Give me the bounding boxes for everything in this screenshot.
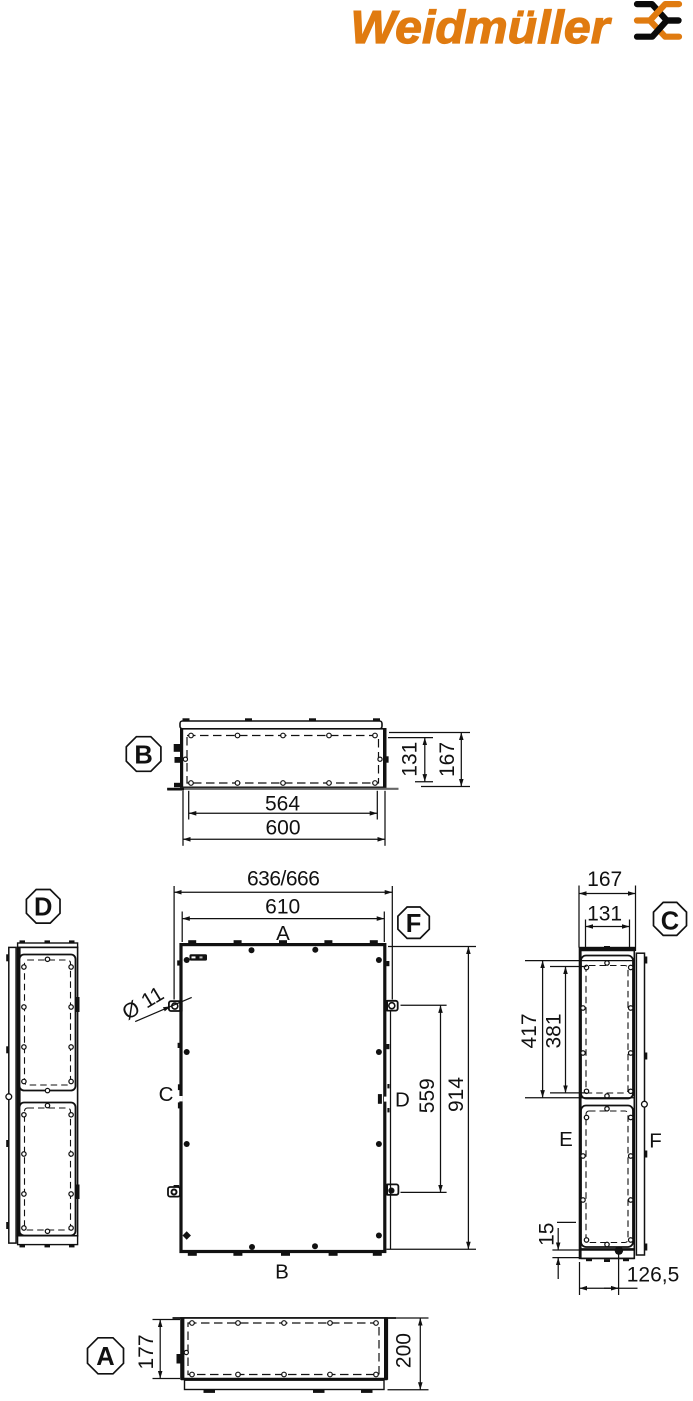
svg-text:C: C xyxy=(661,907,679,935)
svg-text:F: F xyxy=(406,910,422,938)
svg-text:D: D xyxy=(34,894,52,922)
svg-text:200: 200 xyxy=(392,1333,415,1368)
svg-text:610: 610 xyxy=(265,896,300,919)
svg-text:381: 381 xyxy=(542,1013,565,1048)
svg-text:636/666: 636/666 xyxy=(247,868,319,891)
svg-text:600: 600 xyxy=(265,817,300,840)
svg-text:177: 177 xyxy=(135,1334,158,1369)
svg-text:131: 131 xyxy=(587,902,622,925)
svg-text:914: 914 xyxy=(445,1077,468,1112)
svg-text:B: B xyxy=(275,1261,289,1284)
svg-text:131: 131 xyxy=(398,742,421,777)
svg-text:167: 167 xyxy=(587,868,622,891)
svg-text:B: B xyxy=(134,741,152,769)
svg-text:F: F xyxy=(649,1130,662,1153)
svg-text:167: 167 xyxy=(436,742,459,777)
svg-text:Weidmüller: Weidmüller xyxy=(351,1,613,53)
svg-text:559: 559 xyxy=(416,1078,439,1113)
svg-text:D: D xyxy=(395,1089,410,1112)
svg-text:15: 15 xyxy=(536,1223,559,1246)
svg-text:126,5: 126,5 xyxy=(627,1264,680,1287)
svg-text:E: E xyxy=(559,1128,573,1151)
svg-text:C: C xyxy=(159,1083,174,1106)
svg-text:A: A xyxy=(96,1343,114,1371)
svg-text:564: 564 xyxy=(265,793,300,816)
svg-text:A: A xyxy=(276,922,290,945)
svg-text:417: 417 xyxy=(518,1013,541,1048)
